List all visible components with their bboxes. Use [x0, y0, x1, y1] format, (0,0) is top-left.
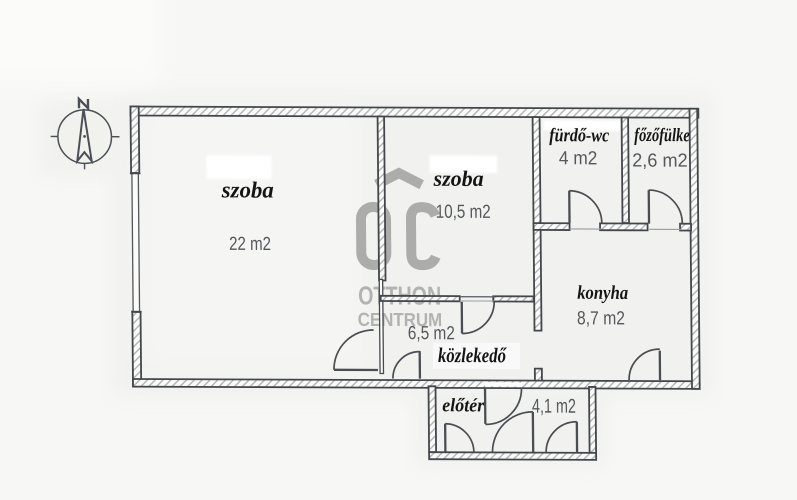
svg-text:22 m2: 22 m2 — [229, 234, 271, 255]
svg-text:6,5 m2: 6,5 m2 — [408, 323, 455, 344]
svg-text:8,7 m2: 8,7 m2 — [577, 308, 625, 329]
svg-text:konyha: konyha — [577, 283, 628, 304]
svg-text:10,5 m2: 10,5 m2 — [436, 202, 491, 223]
svg-text:4,1 m2: 4,1 m2 — [532, 396, 576, 418]
svg-text:főzőfülke: főzőfülke — [634, 125, 690, 146]
svg-text:2,6 m2: 2,6 m2 — [632, 151, 688, 172]
svg-text:előtér: előtér — [442, 395, 485, 416]
svg-text:szoba: szoba — [433, 166, 484, 191]
svg-text:4 m2: 4 m2 — [559, 148, 598, 169]
svg-text:fürdő-wc: fürdő-wc — [549, 125, 610, 146]
svg-text:közlekedő: közlekedő — [438, 343, 507, 367]
svg-text:szoba: szoba — [221, 177, 274, 202]
